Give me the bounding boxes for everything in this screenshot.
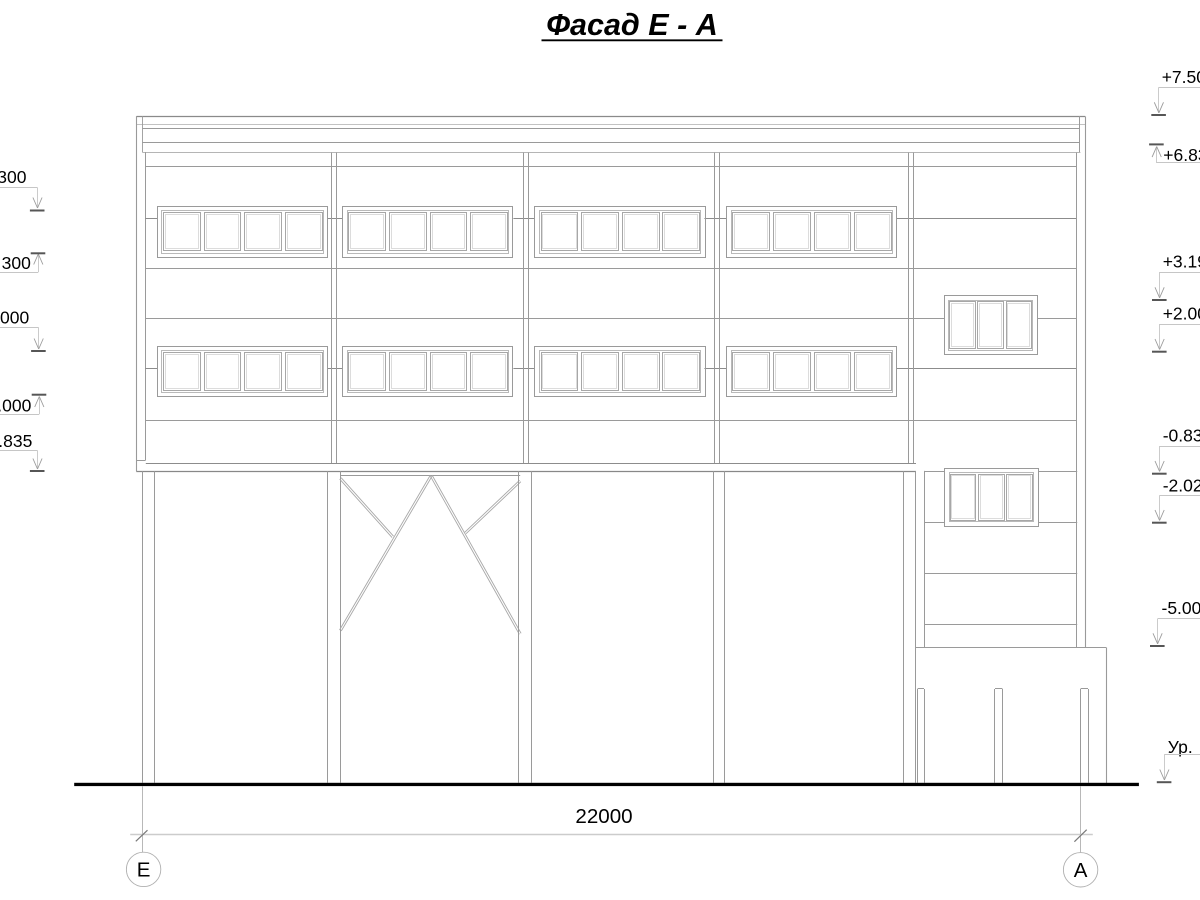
svg-text:Ур.: Ур.	[1168, 737, 1193, 757]
svg-text:-2.025: -2.025	[1163, 475, 1200, 495]
svg-text:+2.000: +2.000	[1163, 303, 1200, 323]
svg-text:-1.000: -1.000	[0, 395, 32, 415]
svg-text:+3.190: +3.190	[1163, 251, 1200, 271]
svg-text:+3.300: +3.300	[0, 253, 31, 273]
svg-text:А: А	[1074, 859, 1088, 882]
svg-text:Фасад Е - А: Фасад Е - А	[546, 8, 718, 42]
svg-text:22000: 22000	[575, 805, 632, 828]
svg-text:+7.500: +7.500	[1162, 67, 1200, 87]
svg-text:Е: Е	[137, 859, 151, 882]
svg-text:-1.835: -1.835	[0, 431, 32, 451]
svg-text:-0.835: -0.835	[1163, 425, 1200, 445]
svg-text:+6.300: +6.300	[0, 167, 27, 187]
svg-text:-5.000: -5.000	[1162, 598, 1200, 618]
svg-text:+2.000: +2.000	[0, 307, 29, 327]
